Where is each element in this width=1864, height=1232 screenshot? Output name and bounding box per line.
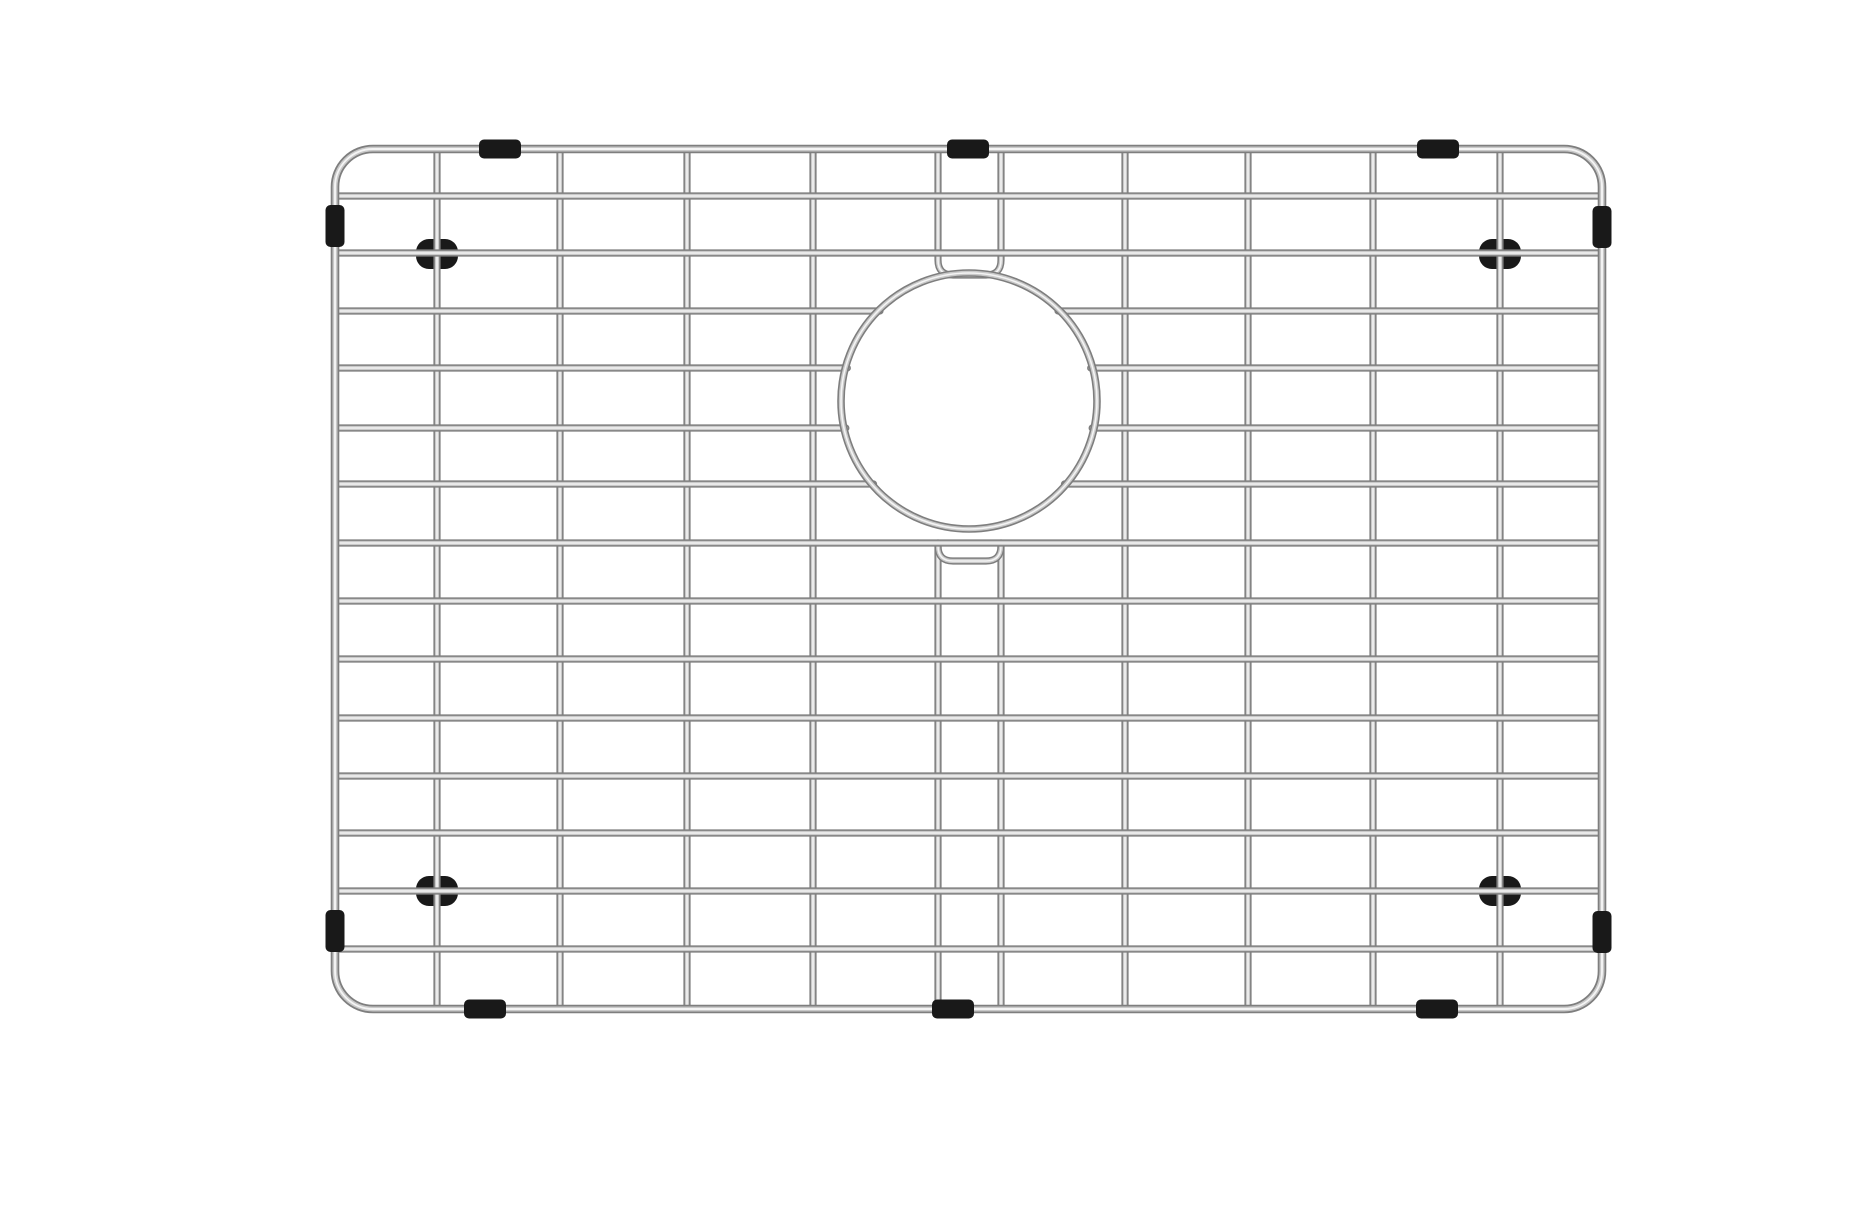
sink-grid-illustration xyxy=(40,16,1864,1216)
bumper-sleeve-top xyxy=(1417,140,1459,159)
bumper-sleeve-left xyxy=(326,205,345,247)
rubber-feet xyxy=(416,239,1521,906)
bumper-sleeve-bottom xyxy=(464,1000,506,1019)
product-image xyxy=(40,16,1864,1216)
bumper-sleeve-right xyxy=(1593,206,1612,248)
bumper-sleeve-left xyxy=(326,910,345,952)
bumper-sleeve-top xyxy=(947,140,989,159)
bumper-sleeve-top xyxy=(479,140,521,159)
bumper-sleeve-bottom xyxy=(932,1000,974,1019)
drain-ring xyxy=(841,273,1097,529)
vertical-wires xyxy=(437,149,1500,1009)
bumper-sleeve-bottom xyxy=(1416,1000,1458,1019)
horizontal-wires xyxy=(335,196,1602,949)
bumper-sleeve-right xyxy=(1593,911,1612,953)
